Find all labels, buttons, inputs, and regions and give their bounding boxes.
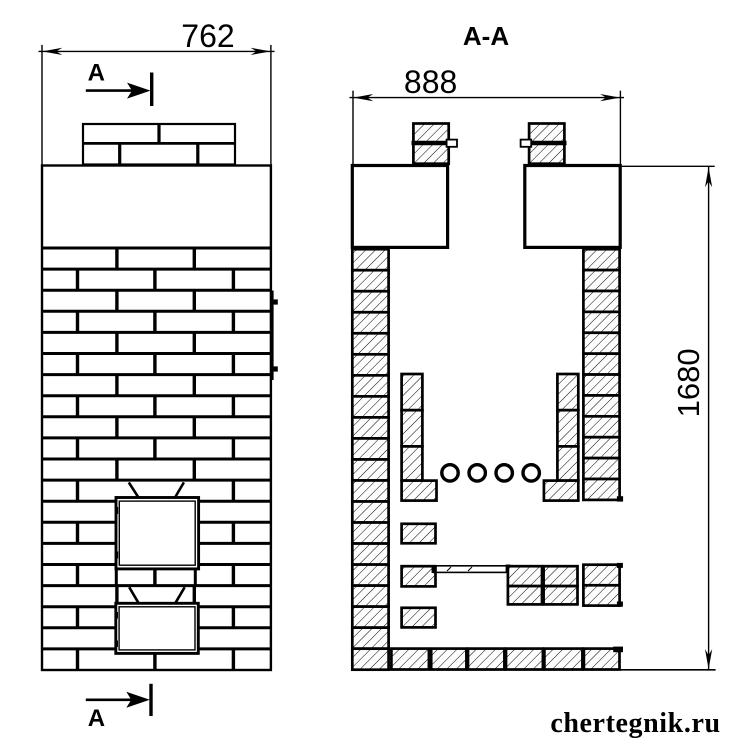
svg-text:A: A (88, 60, 105, 87)
svg-text:1680: 1680 (671, 348, 706, 417)
svg-text:A: A (88, 705, 105, 732)
svg-text:chertegnik.ru: chertegnik.ru (550, 708, 720, 739)
svg-text:A-A: A-A (463, 21, 509, 51)
svg-text:762: 762 (181, 18, 234, 54)
svg-text:888: 888 (404, 64, 457, 100)
